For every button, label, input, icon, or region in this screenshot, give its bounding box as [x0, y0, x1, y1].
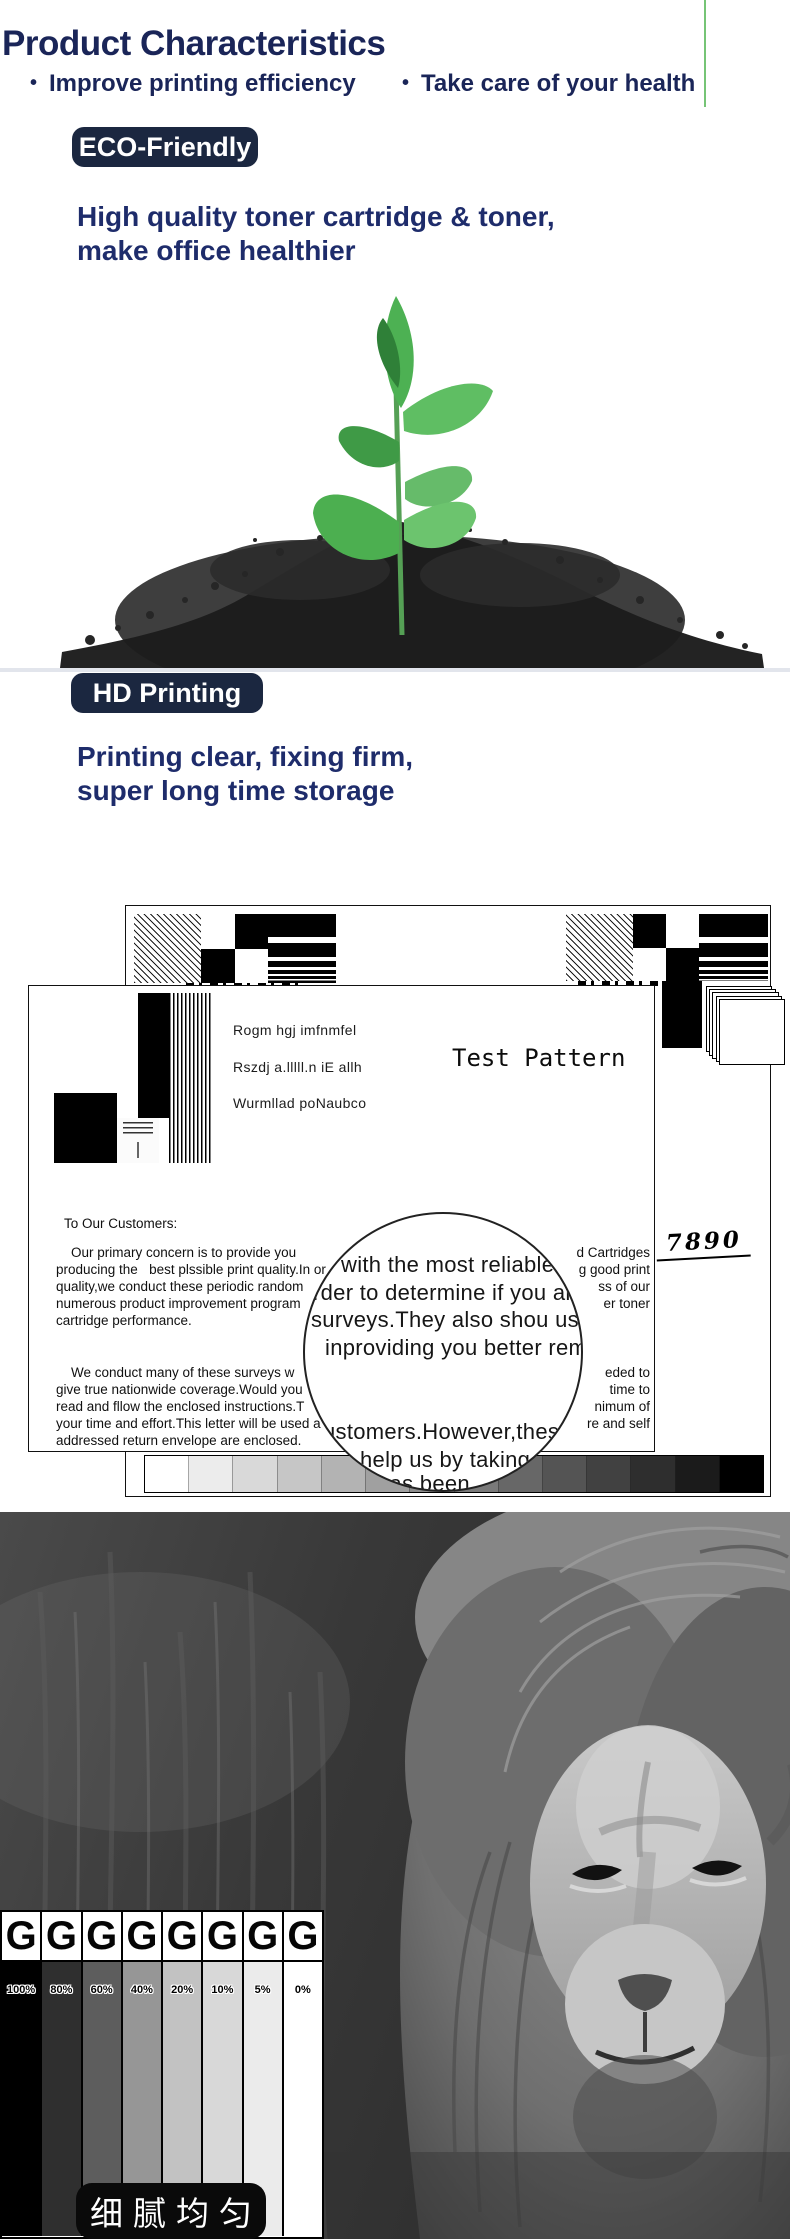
- letter-line-left: your time and effort.This letter will be…: [56, 1415, 321, 1432]
- eco-heading-line2: make office healthier: [77, 235, 356, 266]
- grayscale-step: [587, 1456, 631, 1492]
- letter-line-right: eded to: [605, 1364, 650, 1381]
- letter-line-left: numerous product improvement program: [56, 1295, 301, 1312]
- magnified-text-line: surveys.They also shou us t: [311, 1307, 583, 1333]
- magnifier-circle: with the most reliablerder to determine …: [303, 1212, 583, 1492]
- letter-line-left: producing the best plssible print qualit…: [56, 1261, 326, 1278]
- checker-square: [201, 914, 268, 983]
- sample-text-line: Rogm hgj imfnmfel: [233, 1022, 357, 1038]
- letter-line-right: ss of our: [598, 1278, 650, 1295]
- letter-line-left: Our primary concern is to provide you: [56, 1244, 296, 1261]
- grayscale-step: [145, 1456, 189, 1492]
- letter-line-right: time to: [609, 1381, 650, 1398]
- eco-heading: High quality toner cartridge & toner,mak…: [77, 200, 555, 268]
- letter-line-left: cartridge performance.: [56, 1312, 192, 1329]
- stripe-square: [699, 914, 768, 981]
- density-percent-label: 20%: [171, 1984, 193, 1996]
- density-percent-label: 5%: [255, 1984, 271, 1996]
- grayscale-step: [189, 1456, 233, 1492]
- section-divider: [0, 668, 790, 672]
- eco-friendly-badge: ECO-Friendly: [72, 127, 258, 167]
- eco-heading-line1: High quality toner cartridge & toner,: [77, 201, 555, 232]
- density-percent-label: 100%: [7, 1984, 35, 1996]
- density-letter-cell: G: [163, 1912, 203, 1960]
- hd-heading-line2: super long time storage: [77, 775, 394, 806]
- letter-line-left: give true nationwide coverage.Would you: [56, 1381, 303, 1398]
- sample-text-line: Rszdj a.lllll.n iE allh: [233, 1059, 362, 1075]
- density-percent-label: 80%: [50, 1984, 72, 1996]
- magnified-text: with the most reliablerder to determine …: [305, 1214, 581, 1490]
- grayscale-step: [720, 1456, 763, 1492]
- hd-printing-badge: HD Printing: [71, 673, 263, 713]
- density-letter-cell: G: [2, 1912, 42, 1960]
- density-percent-label: 0%: [295, 1984, 311, 1996]
- magnified-text-line: has been: [377, 1471, 470, 1492]
- green-divider-line: [704, 0, 706, 107]
- letter-line-right: g good print: [579, 1261, 650, 1278]
- density-chart-header: GGGGGGGG: [2, 1912, 322, 1962]
- concentric-square-target: [704, 984, 768, 1048]
- bullet-take-care-health: Take care of your health: [402, 70, 695, 98]
- bullet-improve-efficiency: Improve printing efficiency: [30, 70, 356, 98]
- page-title: Product Characteristics: [2, 24, 385, 64]
- density-percent-label: 60%: [91, 1984, 113, 1996]
- density-caption-badge: 细腻均匀: [76, 2183, 266, 2239]
- letter-line-right: er toner: [603, 1295, 650, 1312]
- hatch-square: [134, 914, 201, 983]
- black-bar: [662, 981, 702, 1048]
- test-pattern-title: Test Pattern: [452, 1044, 625, 1072]
- density-letter-cell: G: [83, 1912, 123, 1960]
- magnified-text-line: with the most reliable: [341, 1252, 554, 1278]
- magnified-text-line: rder to determine if you are: [313, 1280, 583, 1306]
- density-letter-cell: G: [284, 1912, 322, 1960]
- calibration-block-top-right: [566, 914, 768, 981]
- stripe-square: [268, 914, 336, 983]
- letter-line-left: read and fllow the enclosed instructions…: [56, 1398, 304, 1415]
- hatch-square: [566, 914, 633, 981]
- letter-line-right: re and self: [587, 1415, 650, 1432]
- density-letter-cell: G: [42, 1912, 82, 1960]
- toner-density-chart: GGGGGGGG 100%80%60%40%20%10%5%0% 细腻均匀: [0, 1910, 324, 2239]
- letter-salutation: To Our Customers:: [64, 1216, 177, 1231]
- product-description-page: Product Characteristics Improve printing…: [0, 0, 790, 2239]
- calibration-block-top-left: [134, 914, 336, 983]
- magnified-text-line: help us by taking a: [360, 1447, 549, 1473]
- density-letter-cell: G: [203, 1912, 243, 1960]
- checker-square: [633, 914, 699, 981]
- magnified-text-line: ustomers.However,these: [323, 1419, 572, 1445]
- letter-line-right: d Cartridges: [576, 1244, 650, 1261]
- letter-line-left: We conduct many of these surveys w: [56, 1364, 294, 1381]
- letter-line-left: quality,we conduct these periodic random: [56, 1278, 303, 1295]
- density-letter-cell: G: [244, 1912, 284, 1960]
- grayscale-step: [233, 1456, 277, 1492]
- grayscale-step: [631, 1456, 675, 1492]
- hd-heading: Printing clear, fixing firm,super long t…: [77, 740, 413, 808]
- toner-pile-plant-image: [0, 290, 790, 668]
- density-letter-cell: G: [123, 1912, 163, 1960]
- letter-line-left: addressed return envelope are enclosed.: [56, 1432, 301, 1449]
- density-percent-label: 40%: [131, 1984, 153, 1996]
- density-column: 0%: [284, 1962, 322, 2236]
- handwritten-number: 7890: [655, 1226, 751, 1262]
- density-column: 100%: [2, 1962, 42, 2236]
- grayscale-step: [676, 1456, 720, 1492]
- hd-heading-line1: Printing clear, fixing firm,: [77, 741, 413, 772]
- letter-line-right: nimum of: [594, 1398, 650, 1415]
- sample-text-line: Wurmllad poNaubco: [233, 1095, 366, 1111]
- magnified-text-line: inproviding you better rema: [325, 1335, 583, 1361]
- density-percent-label: 10%: [211, 1984, 233, 1996]
